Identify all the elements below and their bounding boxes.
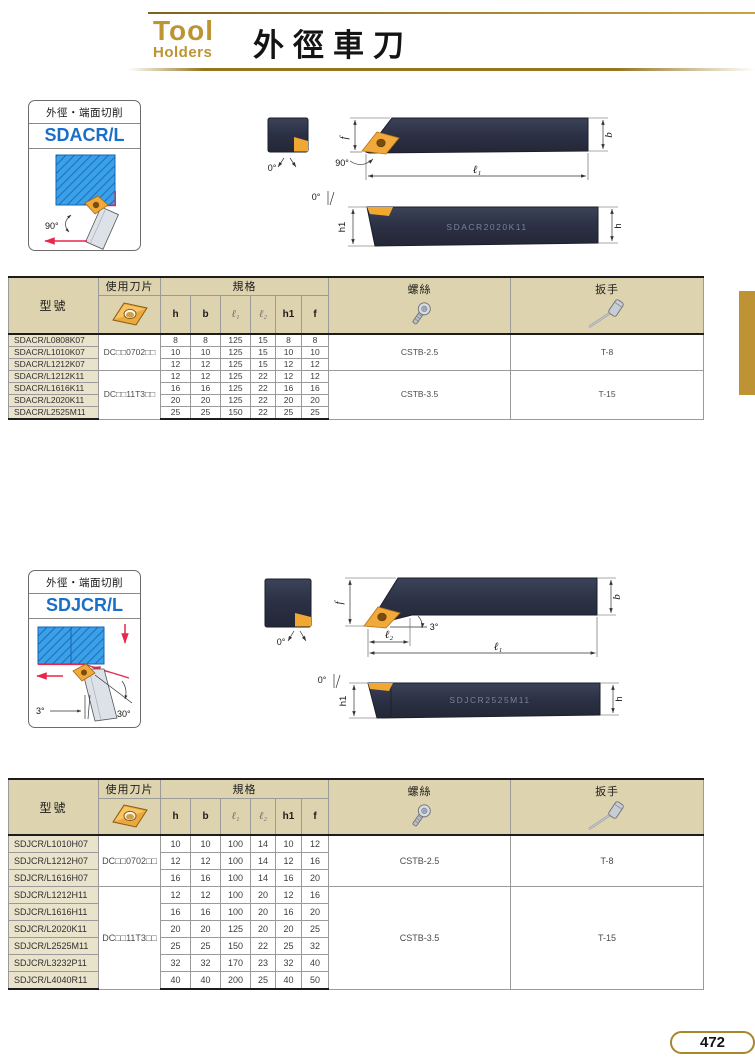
spec-value-cell: 12 xyxy=(191,359,221,371)
dim-h-label: h xyxy=(613,223,624,228)
spec-value-cell: 14 xyxy=(251,835,276,853)
spec-value-cell: 16 xyxy=(191,383,221,395)
spec-value-cell: 20 xyxy=(251,904,276,921)
spec-value-cell: 25 xyxy=(191,938,221,955)
table-row: SDACR/L1212K11DC□□11T3□□1212125221212CST… xyxy=(9,371,704,383)
spec-value-cell: 20 xyxy=(276,921,302,938)
spec-value-cell: 25 xyxy=(302,407,329,420)
header-rule-top xyxy=(148,12,755,14)
spec-value-cell: 12 xyxy=(302,835,329,853)
screw-label: 螺絲 xyxy=(329,780,510,799)
column-header-spec: 規格 xyxy=(161,277,329,295)
wrench-icon xyxy=(585,800,629,832)
table-row: SDJCR/L1212H11DC□□11T3□□1212100201216CST… xyxy=(9,887,704,904)
insert-cell: DC□□0702□□ xyxy=(99,334,161,371)
spec-value-cell: 100 xyxy=(221,853,251,870)
end-angle-label: 0° xyxy=(277,637,286,647)
side-angle-label: 3° xyxy=(430,622,439,632)
spec-value-cell: 12 xyxy=(161,359,191,371)
model-cell: SDJCR/L2020K11 xyxy=(9,921,99,938)
brand-line2: Holders xyxy=(153,45,214,61)
spec-value-cell: 20 xyxy=(302,904,329,921)
dim-l2-label: ℓ₂ xyxy=(385,629,394,641)
spec-value-cell: 12 xyxy=(276,371,302,383)
relief-angle-label: 30° xyxy=(117,709,131,719)
spec-value-cell: 16 xyxy=(276,383,302,395)
column-header-spec: 規格 xyxy=(161,779,329,798)
dimension-drawing-sdacr: 0° f 90° b ℓ₁ 0° xyxy=(250,95,720,260)
spec-value-cell: 12 xyxy=(276,359,302,371)
insert-icon-cell xyxy=(99,295,161,334)
spec-value-cell: 125 xyxy=(221,371,251,383)
screw-icon xyxy=(405,298,435,332)
top-angle-label: 0° xyxy=(312,192,321,202)
spec-value-cell: 10 xyxy=(276,347,302,359)
spec-table-sdjcr: 型號 使用刀片 規格 螺絲 扳手 hbℓ₁ℓ₂h1f SDJCR/L1010H0… xyxy=(8,778,703,990)
lead-angle-label: 3° xyxy=(36,706,45,716)
spec-value-cell: 16 xyxy=(302,383,329,395)
dim-h1-label: h1 xyxy=(337,222,348,233)
top-view: 0° SDJCR2525M11 h1 h xyxy=(318,674,625,718)
spec-value-cell: 32 xyxy=(302,938,329,955)
tool-marking: SDACR2020K11 xyxy=(446,222,527,232)
insert-cell: DC□□0702□□ xyxy=(99,835,161,887)
wrench-icon xyxy=(585,298,629,330)
spec-value-cell: 40 xyxy=(302,955,329,972)
column-header-wrench: 扳手 xyxy=(511,779,704,835)
spec-value-cell: 12 xyxy=(161,371,191,383)
column-header-wrench: 扳手 xyxy=(511,277,704,334)
model-cell: SDACR/L1616K11 xyxy=(9,383,99,395)
spec-value-cell: 125 xyxy=(221,921,251,938)
spec-value-cell: 8 xyxy=(161,334,191,347)
spec-value-cell: 22 xyxy=(251,938,276,955)
spec-value-cell: 100 xyxy=(221,887,251,904)
column-header-model: 型號 xyxy=(9,779,99,835)
catalog-page: Tool Holders 外徑車刀 外徑・端面切削 SDACR/L xyxy=(0,0,755,1062)
page-edge-tab xyxy=(739,291,755,395)
application-subtitle: 外徑・端面切削 xyxy=(29,101,140,124)
spec-value-cell: 20 xyxy=(191,395,221,407)
spec-col-header-4: h1 xyxy=(276,295,302,334)
column-header-screw: 螺絲 xyxy=(329,277,511,334)
application-subtitle: 外徑・端面切削 xyxy=(29,571,140,594)
spec-value-cell: 10 xyxy=(191,835,221,853)
column-header-insert: 使用刀片 xyxy=(99,779,161,798)
wrench-label: 扳手 xyxy=(511,278,703,297)
spec-table: 型號 使用刀片 規格 螺絲 扳手 hbℓ₁ℓ₂h1f SDACR/L0808K0… xyxy=(8,276,704,420)
model-cell: SDACR/L2525M11 xyxy=(9,407,99,420)
screw-cell: CSTB-3.5 xyxy=(329,887,511,990)
screw-cell: CSTB-3.5 xyxy=(329,371,511,420)
spec-col-header-5: f xyxy=(302,798,329,835)
spec-value-cell: 25 xyxy=(191,407,221,420)
spec-value-cell: 16 xyxy=(191,904,221,921)
spec-value-cell: 20 xyxy=(191,921,221,938)
dim-b-label: b xyxy=(603,132,615,138)
spec-value-cell: 8 xyxy=(276,334,302,347)
spec-value-cell: 32 xyxy=(161,955,191,972)
table-row: SDACR/L0808K07DC□□0702□□881251588CSTB-2.… xyxy=(9,334,704,347)
spec-value-cell: 15 xyxy=(251,334,276,347)
spec-table: 型號 使用刀片 規格 螺絲 扳手 hbℓ₁ℓ₂h1f SDJCR/L1010H0… xyxy=(8,778,704,990)
spec-value-cell: 16 xyxy=(161,904,191,921)
spec-value-cell: 14 xyxy=(251,870,276,887)
spec-value-cell: 22 xyxy=(251,407,276,420)
spec-value-cell: 15 xyxy=(251,347,276,359)
header-rule-bottom xyxy=(128,68,755,71)
spec-value-cell: 125 xyxy=(221,395,251,407)
spec-value-cell: 22 xyxy=(251,395,276,407)
wrench-cell: T-8 xyxy=(511,835,704,887)
spec-value-cell: 150 xyxy=(221,938,251,955)
screw-cell: CSTB-2.5 xyxy=(329,835,511,887)
top-view: 0° SDACR2020K11 h1 h xyxy=(312,191,624,246)
spec-value-cell: 40 xyxy=(161,972,191,990)
dim-l1-label: ℓ₁ xyxy=(473,164,482,176)
spec-value-cell: 10 xyxy=(191,347,221,359)
insert-cell: DC□□11T3□□ xyxy=(99,887,161,990)
spec-value-cell: 25 xyxy=(251,972,276,990)
spec-col-header-3: ℓ₂ xyxy=(251,295,276,334)
spec-value-cell: 20 xyxy=(302,395,329,407)
spec-value-cell: 32 xyxy=(191,955,221,972)
spec-value-cell: 100 xyxy=(221,835,251,853)
wrench-label: 扳手 xyxy=(511,780,703,799)
application-figure-sdjcr: 3° 30° xyxy=(29,619,140,727)
spec-value-cell: 170 xyxy=(221,955,251,972)
holder-name: SDACR/L xyxy=(29,124,140,149)
spec-value-cell: 32 xyxy=(276,955,302,972)
model-cell: SDACR/L2020K11 xyxy=(9,395,99,407)
front-view: 3° f b ℓ₂ ℓ₁ xyxy=(333,578,623,657)
spec-value-cell: 20 xyxy=(302,870,329,887)
spec-value-cell: 12 xyxy=(161,853,191,870)
model-cell: SDJCR/L3232P11 xyxy=(9,955,99,972)
spec-col-header-2: ℓ₁ xyxy=(221,798,251,835)
spec-value-cell: 20 xyxy=(161,921,191,938)
spec-value-cell: 40 xyxy=(191,972,221,990)
screw-label: 螺絲 xyxy=(329,278,510,297)
spec-value-cell: 10 xyxy=(302,347,329,359)
spec-value-cell: 25 xyxy=(161,938,191,955)
model-cell: SDJCR/L1212H11 xyxy=(9,887,99,904)
model-cell: SDJCR/L1010H07 xyxy=(9,835,99,853)
spec-value-cell: 100 xyxy=(221,870,251,887)
insert-icon-cell xyxy=(99,798,161,835)
dim-l1-label: ℓ₁ xyxy=(494,641,503,653)
spec-value-cell: 8 xyxy=(191,334,221,347)
spec-value-cell: 16 xyxy=(161,870,191,887)
page-number-badge: 472 xyxy=(670,1031,755,1054)
wrench-cell: T-15 xyxy=(511,371,704,420)
spec-value-cell: 10 xyxy=(161,835,191,853)
dim-h1-label: h1 xyxy=(338,696,349,707)
table-row: SDJCR/L1010H07DC□□0702□□1010100141012CST… xyxy=(9,835,704,853)
model-cell: SDACR/L1212K07 xyxy=(9,359,99,371)
spec-value-cell: 25 xyxy=(276,407,302,420)
page-title: 外徑車刀 xyxy=(253,20,413,65)
dim-b-label: b xyxy=(611,594,623,600)
model-cell: SDJCR/L2525M11 xyxy=(9,938,99,955)
end-angle-label: 0° xyxy=(268,163,277,173)
column-header-insert: 使用刀片 xyxy=(99,277,161,295)
model-cell: SDJCR/L1616H07 xyxy=(9,870,99,887)
top-angle-label: 0° xyxy=(318,675,327,685)
front-angle-label: 90° xyxy=(335,158,349,168)
spec-value-cell: 15 xyxy=(251,359,276,371)
model-cell: SDACR/L0808K07 xyxy=(9,334,99,347)
spec-value-cell: 16 xyxy=(276,870,302,887)
spec-value-cell: 12 xyxy=(302,359,329,371)
end-view: 0° xyxy=(268,118,308,173)
spec-value-cell: 20 xyxy=(161,395,191,407)
spec-value-cell: 16 xyxy=(276,904,302,921)
spec-value-cell: 12 xyxy=(161,887,191,904)
application-box-sdacr: 外徑・端面切削 SDACR/L xyxy=(28,100,141,251)
spec-col-header-1: b xyxy=(191,798,221,835)
spec-value-cell: 10 xyxy=(276,835,302,853)
wrench-cell: T-8 xyxy=(511,334,704,371)
spec-value-cell: 125 xyxy=(221,359,251,371)
spec-value-cell: 16 xyxy=(302,853,329,870)
spec-value-cell: 12 xyxy=(302,371,329,383)
spec-value-cell: 125 xyxy=(221,334,251,347)
spec-value-cell: 12 xyxy=(191,887,221,904)
dim-h-label: h xyxy=(614,696,625,701)
spec-col-header-3: ℓ₂ xyxy=(251,798,276,835)
workpiece xyxy=(56,155,116,206)
spec-value-cell: 50 xyxy=(302,972,329,990)
main-angle-label: 90° xyxy=(45,221,59,231)
model-cell: SDACR/L1212K11 xyxy=(9,371,99,383)
dimension-drawing-sdjcr: 0° 3° f b ℓ₂ ℓ₁ 0° xyxy=(250,565,720,740)
spec-value-cell: 125 xyxy=(221,347,251,359)
tool-marking: SDJCR2525M11 xyxy=(449,695,530,705)
spec-value-cell: 12 xyxy=(191,371,221,383)
dim-f-label: f xyxy=(338,135,350,140)
spec-value-cell: 25 xyxy=(161,407,191,420)
column-header-screw: 螺絲 xyxy=(329,779,511,835)
spec-value-cell: 22 xyxy=(251,383,276,395)
spec-value-cell: 200 xyxy=(221,972,251,990)
brand-logo: Tool Holders xyxy=(153,17,214,61)
spec-value-cell: 23 xyxy=(251,955,276,972)
spec-col-header-1: b xyxy=(191,295,221,334)
spec-value-cell: 20 xyxy=(276,395,302,407)
insert-icon xyxy=(110,300,150,328)
spec-col-header-4: h1 xyxy=(276,798,302,835)
spec-value-cell: 40 xyxy=(276,972,302,990)
spec-value-cell: 14 xyxy=(251,853,276,870)
holder-name: SDJCR/L xyxy=(29,594,140,619)
spec-value-cell: 25 xyxy=(276,938,302,955)
spec-value-cell: 10 xyxy=(161,347,191,359)
spec-col-header-0: h xyxy=(161,798,191,835)
spec-col-header-2: ℓ₁ xyxy=(221,295,251,334)
spec-col-header-5: f xyxy=(302,295,329,334)
spec-value-cell: 20 xyxy=(251,887,276,904)
application-box-sdjcr: 外徑・端面切削 SDJCR/L xyxy=(28,570,141,728)
application-figure-sdacr: 90° xyxy=(29,149,140,251)
spec-table-sdacr: 型號 使用刀片 規格 螺絲 扳手 hbℓ₁ℓ₂h1f SDACR/L0808K0… xyxy=(8,276,703,420)
model-cell: SDJCR/L1616H11 xyxy=(9,904,99,921)
model-cell: SDACR/L1010K07 xyxy=(9,347,99,359)
spec-value-cell: 16 xyxy=(161,383,191,395)
spec-value-cell: 12 xyxy=(276,853,302,870)
spec-value-cell: 8 xyxy=(302,334,329,347)
brand-line1: Tool xyxy=(153,17,214,45)
spec-value-cell: 12 xyxy=(276,887,302,904)
spec-value-cell: 100 xyxy=(221,904,251,921)
end-view: 0° xyxy=(265,579,311,647)
spec-value-cell: 25 xyxy=(302,921,329,938)
spec-value-cell: 16 xyxy=(191,870,221,887)
model-cell: SDJCR/L4040R11 xyxy=(9,972,99,990)
spec-value-cell: 16 xyxy=(302,887,329,904)
screw-icon xyxy=(405,800,435,834)
front-view: f 90° b ℓ₁ xyxy=(335,118,615,180)
screw-cell: CSTB-2.5 xyxy=(329,334,511,371)
model-cell: SDJCR/L1212H07 xyxy=(9,853,99,870)
spec-col-header-0: h xyxy=(161,295,191,334)
spec-value-cell: 20 xyxy=(251,921,276,938)
insert-icon xyxy=(110,802,150,830)
spec-value-cell: 150 xyxy=(221,407,251,420)
spec-value-cell: 12 xyxy=(191,853,221,870)
spec-value-cell: 125 xyxy=(221,383,251,395)
wrench-cell: T-15 xyxy=(511,887,704,990)
spec-value-cell: 22 xyxy=(251,371,276,383)
column-header-model: 型號 xyxy=(9,277,99,334)
insert-cell: DC□□11T3□□ xyxy=(99,371,161,420)
dim-f-label: f xyxy=(333,600,345,605)
